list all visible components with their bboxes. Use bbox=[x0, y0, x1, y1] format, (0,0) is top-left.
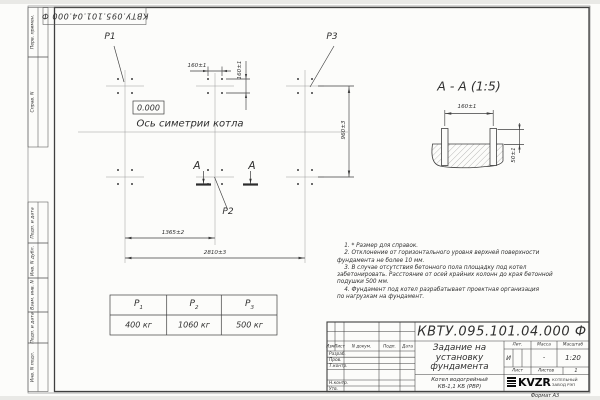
company-logo: KVZR bbox=[507, 376, 551, 389]
sig-row-nkontr: Н.контр. bbox=[329, 381, 348, 386]
left-attribute-boxes bbox=[28, 8, 146, 392]
dim-960: 960±3 bbox=[341, 121, 347, 140]
frame-field-podp-data-1: Подп. и дата bbox=[31, 207, 36, 238]
section-cut-marks bbox=[196, 171, 258, 185]
scale-value: 1:20 bbox=[565, 354, 581, 362]
section-dim-50: 50±1 bbox=[511, 147, 517, 162]
col-header-podp: Подп. bbox=[383, 344, 396, 349]
technical-notes: 1. * Размер для справок. 2. Отклонение о… bbox=[337, 243, 553, 301]
section-view-title: А - А (1:5) bbox=[437, 78, 500, 93]
title-block-designation: КВТУ.095.101.04.000 Ф bbox=[417, 324, 586, 339]
doc-title-line-2: установку bbox=[436, 353, 483, 363]
note-line: по нагрузкам на фундамент. bbox=[337, 294, 553, 301]
sig-row-utv: Утв. bbox=[329, 387, 338, 392]
drawing-geometry bbox=[0, 0, 600, 400]
frame-field-vzam-inv: Взам. инв. N bbox=[31, 280, 36, 310]
section-letter-right: А bbox=[248, 160, 255, 172]
anchor-bolt-left bbox=[442, 129, 449, 166]
elevation-value: 0.000 bbox=[137, 103, 160, 112]
col-header-dokum: N докум. bbox=[352, 344, 371, 349]
col-header-list: Лист bbox=[334, 344, 345, 349]
note-line: фундамента не более 10 мм. bbox=[337, 258, 553, 265]
logo-coil-icon bbox=[507, 377, 516, 388]
note-line: 4. Фундамент под котел разрабатывает про… bbox=[337, 287, 553, 294]
plan-centerlines bbox=[78, 70, 348, 263]
doc-title-line-3: фундамента bbox=[430, 362, 488, 372]
note-line: 1. * Размер для справок. bbox=[337, 243, 553, 250]
note-line: подушки 500 мм. bbox=[337, 279, 553, 286]
doc-title-line-1: Задание на bbox=[433, 343, 486, 353]
frame-field-perv-primen: Перв. примен. bbox=[31, 15, 36, 50]
dim-160-vertical: 160±1 bbox=[237, 61, 243, 80]
mass-header: Масса bbox=[537, 343, 551, 348]
dim-1365: 1365±2 bbox=[162, 230, 184, 236]
mass-value: - bbox=[543, 353, 545, 361]
top-designation-flipped: КВТУ.095.101.04.000 Ф bbox=[41, 12, 148, 21]
note-line: забетонировать. Расстояние от осей крайн… bbox=[337, 272, 553, 279]
anchor-bolt-right bbox=[490, 129, 497, 166]
load-table-value-p1: 400 кг bbox=[125, 321, 152, 330]
col-header-data: Дата bbox=[402, 344, 413, 349]
load-point-p2-label: P2 bbox=[222, 207, 233, 217]
sig-row-prov: Пров. bbox=[329, 358, 342, 363]
plan-dimensions bbox=[125, 61, 354, 259]
frame-field-inv-dubl: Инв. N дубл. bbox=[31, 245, 36, 275]
section-dim-160: 160±1 bbox=[458, 104, 477, 110]
logo-caption: КОТЕЛЬНЫЙ ЗАВОД РЭП bbox=[552, 378, 578, 387]
frame-field-podp-data-2: Подп. и дата bbox=[31, 312, 36, 343]
load-table-value-p3: 500 кг bbox=[236, 321, 263, 330]
frame-field-sprav-n: Справ. N bbox=[31, 91, 36, 112]
drawing-sheet: Перв. примен. Справ. N Подп. и дата Инв.… bbox=[0, 0, 600, 400]
sheets-label: Листов bbox=[538, 369, 554, 374]
boiler-symmetry-axis-label: Ось симетрии котла bbox=[137, 119, 244, 130]
sig-row-razrab: Разраб. bbox=[329, 352, 346, 357]
section-letter-left: А bbox=[193, 160, 200, 172]
frame-field-inv-podl: Инв. N подл. bbox=[31, 352, 36, 382]
load-table-value-p2: 1060 кг bbox=[178, 321, 210, 330]
scale-header: Масштаб bbox=[563, 343, 583, 348]
note-line: 3. В случае отсутствия бетонного пола пл… bbox=[337, 265, 553, 272]
logo-text: KVZR bbox=[518, 376, 551, 389]
product-name-line-1: Котел водогрейный bbox=[431, 377, 488, 383]
lit-value: И bbox=[506, 354, 511, 362]
sheet-label: Лист bbox=[512, 369, 523, 374]
load-point-p3-label: P3 bbox=[326, 32, 337, 42]
lit-header: Лит. bbox=[513, 343, 523, 348]
sheets-value: 1 bbox=[574, 368, 577, 374]
product-name-line-2: КВ-1,1 КБ (РВР) bbox=[438, 384, 481, 390]
format-label: Формат А3 bbox=[531, 393, 559, 399]
load-point-p1-label: P1 bbox=[104, 32, 115, 42]
load-table-header-p3: P3 bbox=[245, 299, 254, 311]
note-line: 2. Отклонение от горизонтального уровня … bbox=[337, 250, 553, 257]
dim-2810: 2810±3 bbox=[204, 250, 226, 256]
dim-160-horizontal: 160±1 bbox=[188, 63, 207, 69]
load-table-header-p1: P1 bbox=[134, 299, 143, 311]
sig-row-tkontr: Т.контр. bbox=[329, 364, 348, 369]
load-table-header-p2: P2 bbox=[190, 299, 199, 311]
